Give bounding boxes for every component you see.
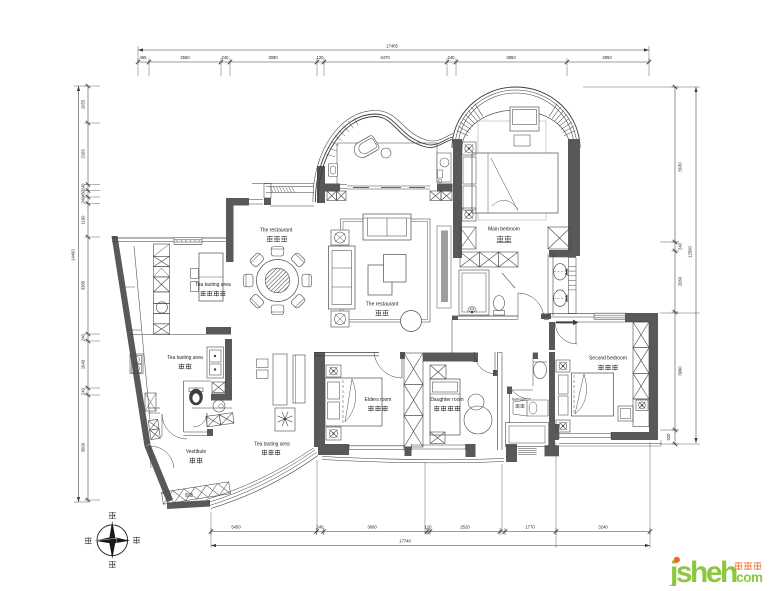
svg-text:5630: 5630: [678, 162, 683, 172]
svg-text:120: 120: [425, 525, 433, 530]
svg-text:2550: 2550: [180, 55, 190, 60]
svg-text:480: 480: [81, 189, 86, 197]
svg-text:14460: 14460: [71, 249, 76, 261]
svg-text:240: 240: [448, 55, 456, 60]
svg-text:Second bedroom: Second bedroom: [589, 356, 627, 362]
svg-text:240: 240: [81, 333, 86, 341]
svg-text:2060: 2060: [678, 276, 683, 286]
svg-text:Tea tasting area: Tea tasting area: [167, 355, 203, 361]
svg-text:1640: 1640: [81, 359, 86, 369]
svg-text:Tea tasting area: Tea tasting area: [195, 282, 231, 288]
svg-text:520: 520: [666, 433, 671, 441]
svg-text:3380: 3380: [81, 280, 86, 290]
svg-text:240: 240: [81, 387, 86, 395]
svg-text:2520: 2520: [460, 525, 470, 530]
svg-text:240: 240: [81, 196, 86, 204]
svg-text:12500: 12500: [688, 246, 693, 258]
svg-text:1055: 1055: [81, 99, 86, 109]
svg-text:3990: 3990: [678, 366, 683, 376]
svg-text:3850: 3850: [506, 55, 516, 60]
svg-text:The restaurant: The restaurant: [366, 302, 399, 308]
svg-text:4470: 4470: [380, 55, 390, 60]
svg-text:Elders room: Elders room: [365, 397, 392, 403]
svg-text:3240: 3240: [598, 525, 608, 530]
svg-text:3600: 3600: [367, 525, 377, 530]
svg-text:240: 240: [317, 525, 325, 530]
svg-text:240: 240: [81, 183, 86, 191]
svg-text:2850: 2850: [602, 55, 612, 60]
svg-text:1190: 1190: [81, 215, 86, 225]
svg-text:The restaurant: The restaurant: [260, 228, 293, 234]
svg-text:240: 240: [678, 242, 683, 250]
svg-text:17740: 17740: [399, 539, 411, 544]
svg-text:17405: 17405: [386, 44, 398, 49]
svg-text:Vestibule: Vestibule: [186, 449, 207, 455]
svg-text:Daughter room: Daughter room: [430, 397, 463, 403]
svg-text:3080: 3080: [268, 55, 278, 60]
svg-text:120: 120: [317, 55, 325, 60]
svg-text:2165: 2165: [81, 148, 86, 158]
svg-text:3600: 3600: [81, 442, 86, 452]
svg-text:240: 240: [222, 55, 230, 60]
svg-text:Main bedroom: Main bedroom: [488, 227, 520, 233]
svg-text:455: 455: [140, 55, 148, 60]
svg-text:.com: .com: [733, 570, 763, 585]
svg-text:Tea tasting area: Tea tasting area: [254, 442, 290, 448]
svg-text:5450: 5450: [231, 525, 241, 530]
svg-text:1770: 1770: [525, 525, 535, 530]
